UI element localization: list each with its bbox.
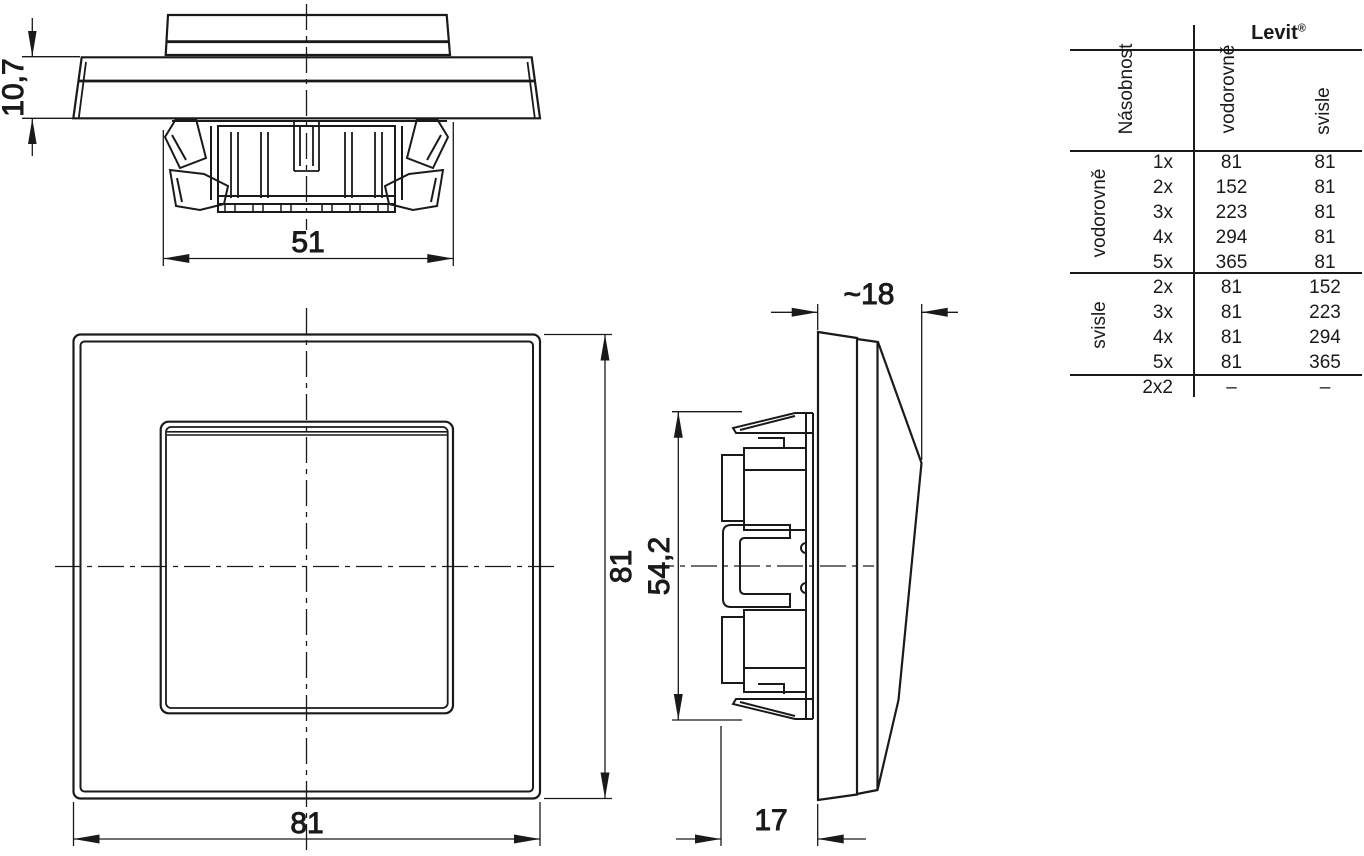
table-row: 5x 81 365 — [1068, 351, 1360, 376]
cell-horizontal: – — [1173, 377, 1290, 399]
cell-multiplicity: 1x — [1068, 152, 1173, 174]
column-header-multiplicity: Násobnost — [1117, 29, 1137, 149]
dim-label-mechanism-depth: 17 — [754, 804, 787, 837]
cell-horizontal: 365 — [1173, 252, 1290, 274]
dim-label-frame-thickness: 10,7 — [0, 58, 30, 116]
table-row: 4x 81 294 — [1068, 326, 1360, 351]
extension-lines — [74, 335, 613, 847]
cell-horizontal: 81 — [1173, 302, 1290, 324]
cell-vertical: – — [1290, 377, 1360, 399]
cell-horizontal: 81 — [1173, 327, 1290, 349]
table-row: 2x 81 152 — [1068, 276, 1360, 301]
cell-multiplicity: 2x — [1068, 177, 1173, 199]
table-row: 2x 152 81 — [1068, 176, 1360, 201]
cell-vertical: 152 — [1290, 277, 1360, 299]
dim-label-mechanism-width: 51 — [291, 226, 324, 259]
dim-label-height: 81 — [605, 550, 638, 583]
mechanism-body — [172, 121, 447, 212]
cell-multiplicity: 4x — [1068, 327, 1173, 349]
table-row: 4x 294 81 — [1068, 226, 1360, 251]
front-view: 81 81 — [55, 308, 638, 852]
side-view: ~18 54,2 17 — [643, 278, 958, 846]
cell-vertical: 81 — [1290, 252, 1360, 274]
cell-vertical: 81 — [1290, 227, 1360, 249]
cell-vertical: 81 — [1290, 152, 1360, 174]
cell-vertical: 365 — [1290, 352, 1360, 374]
rocker-top-lines — [167, 432, 447, 435]
column-header-horizontal: vodorovně — [1219, 29, 1239, 149]
dim-label-width: 81 — [290, 807, 323, 840]
centerlines — [55, 308, 560, 852]
cell-horizontal: 152 — [1173, 177, 1290, 199]
cell-horizontal: 81 — [1173, 277, 1290, 299]
cell-horizontal: 81 — [1173, 352, 1290, 374]
cell-multiplicity: 2x — [1068, 277, 1173, 299]
cell-horizontal: 294 — [1173, 227, 1290, 249]
dimension-lines — [74, 335, 606, 840]
table-row: 1x 81 81 — [1068, 151, 1360, 176]
table-row: 3x 223 81 — [1068, 201, 1360, 226]
top-view: 10,7 51 — [0, 4, 540, 266]
cell-vertical: 294 — [1290, 327, 1360, 349]
rocker-cap-outline — [166, 15, 450, 55]
cell-vertical: 81 — [1290, 202, 1360, 224]
cell-multiplicity: 2x2 — [1068, 377, 1173, 399]
dimension-arrowheads — [28, 31, 453, 263]
cell-horizontal: 81 — [1173, 152, 1290, 174]
table-row: 5x 365 81 — [1068, 251, 1360, 276]
registered-mark: ® — [1298, 22, 1306, 34]
cell-multiplicity: 3x — [1068, 202, 1173, 224]
dim-label-mechanism-height: 54,2 — [643, 537, 676, 595]
table-row: 3x 81 223 — [1068, 301, 1360, 326]
cell-multiplicity: 4x — [1068, 227, 1173, 249]
table-row-footer: 2x2 – – — [1068, 376, 1360, 401]
drawing-sheet: 10,7 51 81 81 — [0, 0, 1364, 856]
dimension-arrowheads — [674, 308, 948, 844]
cell-multiplicity: 5x — [1068, 252, 1173, 274]
size-table: Levit® Násobnost vodorovně svisle vodoro… — [1068, 0, 1364, 400]
cell-multiplicity: 3x — [1068, 302, 1173, 324]
cell-multiplicity: 5x — [1068, 352, 1173, 374]
cell-vertical: 223 — [1290, 302, 1360, 324]
cell-vertical: 81 — [1290, 177, 1360, 199]
dimension-arrowheads — [74, 335, 610, 844]
dim-label-total-depth: ~18 — [844, 278, 895, 311]
cell-horizontal: 223 — [1173, 202, 1290, 224]
